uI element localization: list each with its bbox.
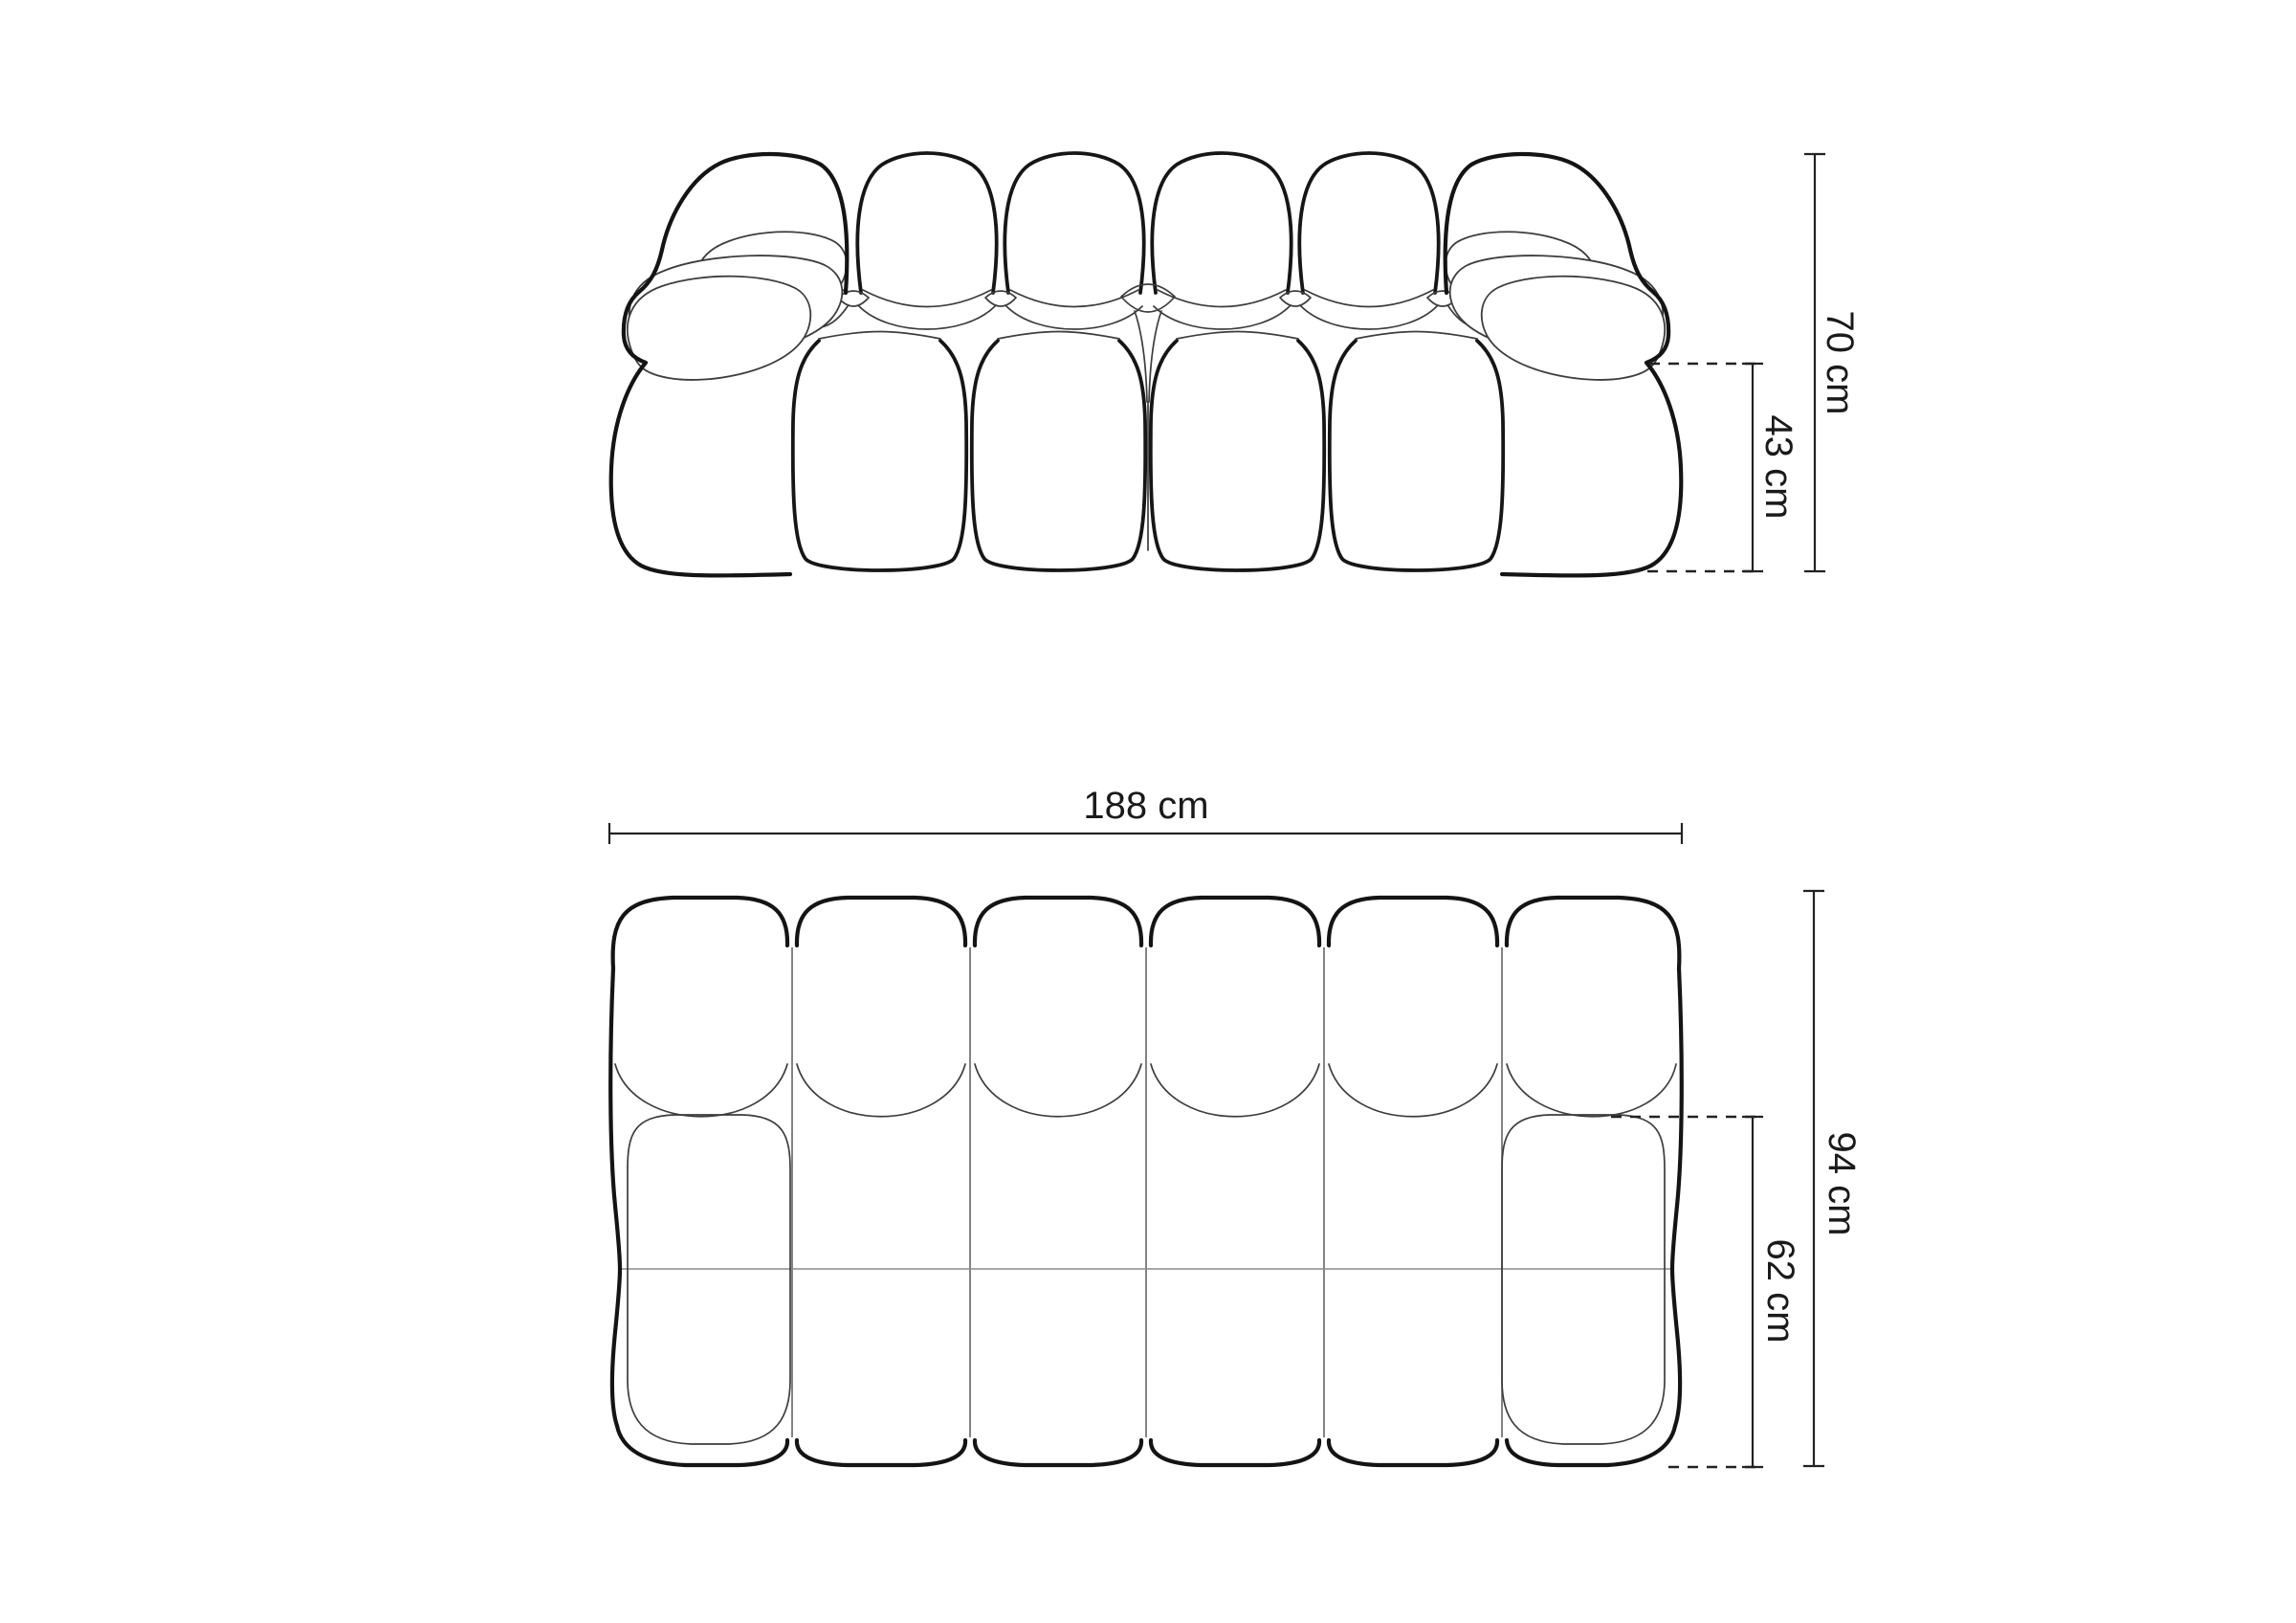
- armrest-capsule-front: [628, 277, 810, 380]
- lower-back-bump: [1006, 306, 1142, 329]
- back-cushion-outline: [1004, 153, 1143, 293]
- back-cushion-scallop: [797, 1064, 965, 1117]
- seat-cushion-fill: [1151, 334, 1324, 571]
- perimeter-top-arc: [613, 898, 787, 968]
- perimeter-top-arc: [1329, 898, 1497, 945]
- plan-inner-lines: [615, 947, 1676, 1444]
- sofa-front-elevation-view: 70 cm 43 cm: [611, 153, 1861, 575]
- technical-drawing-canvas: 70 cm 43 cm: [0, 0, 2296, 1623]
- cushion-scallop: [1158, 290, 1286, 307]
- back-cushion-scallop: [615, 1064, 787, 1117]
- perimeter-top-arc: [1507, 898, 1679, 968]
- back-cushion-outline: [857, 153, 996, 293]
- lower-back-bump: [859, 306, 995, 329]
- tuft-diamond: [1280, 291, 1311, 306]
- back-cushions: [857, 153, 1438, 293]
- sofa-dimension-diagram: 70 cm 43 cm: [0, 0, 2296, 1623]
- sofa-plan-view: 188 cm 94 cm 62 cm: [609, 785, 1863, 1467]
- back-cushion-scallop: [1329, 1064, 1497, 1117]
- tuft-diamond: [985, 291, 1016, 306]
- dimension-label-62cm: 62 cm: [1759, 1239, 1801, 1344]
- perimeter-top-arc: [797, 898, 965, 945]
- perimeter-bottom-arc: [1329, 1440, 1497, 1465]
- perimeter-right-edge: [1672, 968, 1682, 1426]
- tufting-lines: [765, 284, 1523, 329]
- dimension-overall-depth: 94 cm: [1803, 891, 1863, 1466]
- cushion-scallop: [863, 290, 991, 307]
- lower-back-bump: [1154, 306, 1290, 329]
- back-cushion-scallop: [1151, 1064, 1319, 1117]
- dimension-label-188cm: 188 cm: [1083, 785, 1208, 827]
- back-cushion-outline: [1299, 153, 1438, 293]
- seat-cushion-fill: [1330, 334, 1503, 571]
- back-cushion-scallop: [1507, 1064, 1676, 1117]
- dimension-overall-height: 70 cm: [1804, 154, 1861, 571]
- dimension-overall-width: 188 cm: [609, 785, 1682, 844]
- back-cushion-outline: [1152, 153, 1291, 293]
- seat-cushion-fill: [793, 334, 966, 571]
- dimension-seat-depth: 62 cm: [1611, 1117, 1801, 1467]
- armrest-capsule-front: [1482, 277, 1665, 380]
- dimension-label-94cm: 94 cm: [1821, 1132, 1863, 1236]
- dimension-armrest-height: 43 cm: [1628, 364, 1799, 571]
- dimension-label-43cm: 43 cm: [1757, 415, 1799, 520]
- perimeter-bottom-arc: [975, 1440, 1141, 1465]
- perimeter-top-arc: [1151, 898, 1319, 945]
- perimeter-bottom-arc: [1507, 1426, 1675, 1465]
- perimeter-bottom-arc: [797, 1440, 965, 1465]
- seat-cushions: [793, 311, 1503, 570]
- dimension-label-70cm: 70 cm: [1819, 311, 1861, 415]
- back-cushion-scallop: [975, 1064, 1141, 1117]
- lower-back-bump: [1301, 306, 1437, 329]
- perimeter-bottom-arc: [617, 1426, 787, 1465]
- cushion-scallop: [1305, 290, 1433, 307]
- perimeter-top-arc: [975, 898, 1141, 945]
- perimeter-left-edge: [610, 968, 620, 1426]
- cushion-scallop: [1010, 290, 1138, 307]
- perimeter-bottom-arc: [1151, 1440, 1319, 1465]
- seat-cushion-fill: [972, 334, 1145, 571]
- tuft-diamond-center: [1121, 284, 1175, 312]
- left-armrest-plan-outline: [628, 1115, 790, 1444]
- right-armrest-plan-outline: [1502, 1115, 1665, 1444]
